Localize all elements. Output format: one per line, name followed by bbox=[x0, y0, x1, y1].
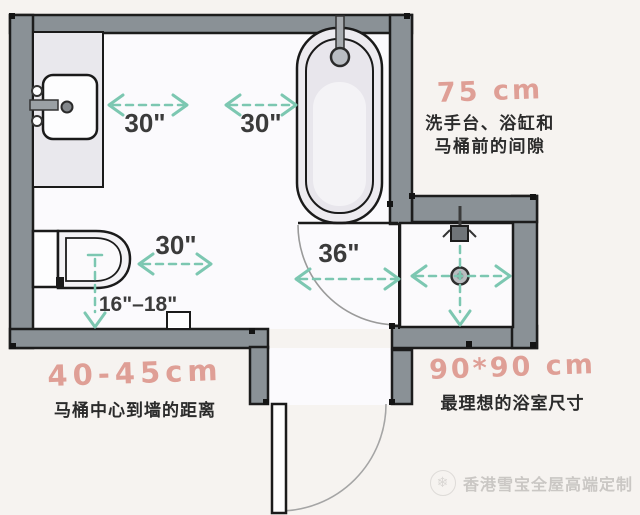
annotation-value: 40-45cm bbox=[34, 353, 235, 394]
entry-door-leaf bbox=[272, 404, 286, 513]
sink-drain-icon bbox=[62, 102, 73, 113]
watermark-text: 香港雪宝全屋高端定制 bbox=[463, 471, 633, 495]
bathroom-floor-plan: 30" 30" 30" 36" 16"–18" 75 cm 洗手台、浴缸和 马桶… bbox=[0, 0, 640, 515]
bathtub-floor bbox=[313, 82, 366, 206]
tub-faucet-icon bbox=[331, 48, 349, 66]
wall-left bbox=[10, 15, 33, 348]
doorway-floor bbox=[268, 348, 392, 405]
faucet-spout-icon bbox=[30, 100, 58, 110]
dim-label-sink-clearance: 30" bbox=[124, 108, 165, 138]
wall-tub-right bbox=[390, 15, 412, 224]
dim-label-door-clearance: 36" bbox=[318, 238, 359, 268]
annotation-description: 马桶中心到墙的距离 bbox=[35, 396, 235, 421]
wall-bottom-left bbox=[10, 329, 268, 348]
wall-door-jamb-left bbox=[250, 347, 268, 404]
shower-head-icon bbox=[451, 226, 468, 241]
sink-counter bbox=[30, 32, 103, 187]
annotation-ideal-shower: 90*90 cm 最理想的浴室尺寸 bbox=[425, 352, 600, 414]
toilet-seat bbox=[66, 238, 121, 281]
faucet-knob-icon bbox=[32, 86, 42, 96]
annotation-description: 最理想的浴室尺寸 bbox=[425, 389, 600, 414]
dim-label-toilet-clearance: 30" bbox=[155, 230, 196, 260]
wall-door-jamb-right bbox=[392, 350, 412, 404]
annotation-toilet-distance: 40-45cm 马桶中心到墙的距离 bbox=[35, 356, 235, 421]
toilet-tank bbox=[33, 231, 58, 287]
annotation-description: 洗手台、浴缸和 马桶前的间隙 bbox=[415, 112, 565, 158]
toilet-hinge-mark bbox=[56, 277, 64, 288]
watermark: ❄ 香港雪宝全屋高端定制 bbox=[430, 470, 633, 496]
dim-label-toilet-to-wall: 16"–18" bbox=[99, 293, 177, 316]
annotation-value: 75 cm bbox=[415, 73, 566, 109]
annotation-value: 90*90 cm bbox=[425, 349, 601, 386]
annotation-front-clearance: 75 cm 洗手台、浴缸和 马桶前的间隙 bbox=[415, 76, 565, 158]
door-swing-arc-outer bbox=[279, 404, 386, 511]
dim-label-tub-clearance: 30" bbox=[240, 108, 281, 138]
bathtub bbox=[297, 16, 382, 223]
wall-shower-top bbox=[412, 196, 537, 222]
faucet-knob-icon bbox=[32, 116, 42, 126]
snowflake-logo-icon: ❄ bbox=[430, 470, 456, 496]
toilet bbox=[33, 231, 130, 288]
